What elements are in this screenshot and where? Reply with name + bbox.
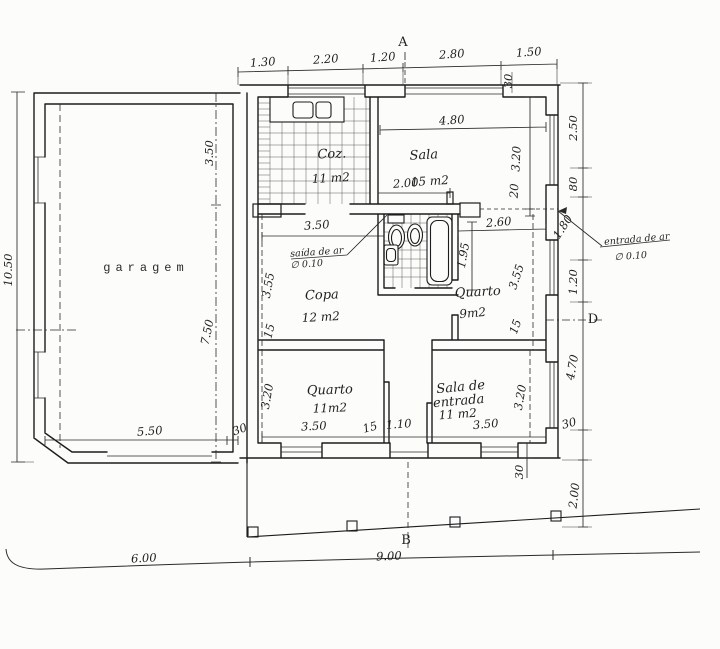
dim-garage-depth-b: 7.50 — [198, 318, 217, 346]
dim-living-width: 4.80 — [437, 112, 465, 128]
annotation-air-inlet: entrada de ar — [604, 231, 672, 248]
room-label-kitchen: Coz. — [317, 147, 346, 163]
section-marker-a: A — [397, 35, 408, 50]
dim-right-5: 4.70 — [563, 353, 581, 382]
room-area-kitchen: 11 m2 — [311, 170, 350, 186]
room-label-bedroom: Quarto — [307, 382, 354, 399]
dim-garage-width: 5.50 — [136, 423, 163, 439]
dim-pantry-depth: 3.55 — [259, 271, 277, 299]
dim-right-4: 1.20 — [566, 269, 580, 295]
kitchen-sink-counter — [270, 97, 344, 122]
dim-bed11-width: 3.50 — [301, 418, 327, 433]
floor-plan-drawing: A B D 1.30 2.20 1.20 2.80 1.50 30 2.50 8… — [0, 0, 720, 649]
dim-entry-wall: 30 — [512, 465, 526, 480]
floor-plan-page: A B D 1.30 2.20 1.20 2.80 1.50 30 2.50 8… — [0, 0, 720, 649]
room-label-pantry: Copa — [305, 287, 339, 303]
dim-top-wall: 30 — [501, 74, 515, 89]
dim-right-6: 30 — [560, 414, 578, 431]
dim-right-7: 2.00 — [565, 482, 582, 510]
dim-bed9-wall: 15 — [506, 317, 524, 336]
dim-right-3: 1.80 — [550, 212, 576, 241]
room-area-entry: 11 m2 — [438, 406, 477, 423]
dim-top-2: 2.20 — [311, 51, 339, 67]
porch-column — [450, 517, 460, 527]
section-marker-b: B — [401, 533, 411, 548]
dim-entry-depth: 3.20 — [511, 383, 529, 411]
dim-bottom-left: 6.00 — [131, 550, 157, 565]
dim-living-pass: 2.00 — [391, 175, 419, 191]
dim-right-1: 2.50 — [566, 115, 580, 142]
room-label-garage: garagem — [103, 261, 188, 275]
dim-top-3: 1.20 — [369, 49, 396, 65]
room-label-living: Sala — [409, 147, 438, 163]
annotation-air-inlet-dia: ∅ 0.10 — [614, 250, 647, 263]
dim-living-wall: 20 — [507, 183, 522, 199]
dim-bed9-depth: 3.55 — [506, 262, 527, 291]
dim-top-1: 1.30 — [249, 54, 276, 70]
porch-column — [551, 511, 561, 521]
porch-column — [248, 527, 258, 537]
annotation-air-outlet-dia: ∅ 0.10 — [290, 258, 323, 271]
dim-bed9-width: 2.60 — [484, 214, 512, 230]
toilet-tank — [388, 215, 404, 223]
room-label-bedroom-small: Quarto — [454, 284, 501, 301]
wall-pier — [460, 203, 480, 217]
dim-garage-depth-a: 3.50 — [202, 140, 216, 166]
dim-bed11-depth: 3.20 — [258, 382, 276, 410]
dim-living-depth: 3.20 — [508, 146, 523, 172]
porch-column — [347, 521, 357, 531]
dim-hall-wall: 15 — [361, 418, 379, 435]
dim-right-2: 80 — [566, 177, 580, 192]
wall-pier — [253, 204, 281, 217]
dim-bottom-right: 9.00 — [376, 549, 402, 564]
dim-top-5: 1.50 — [515, 44, 542, 60]
dim-bath-length: 1.95 — [454, 241, 472, 269]
dim-hall-width: 1.10 — [385, 416, 412, 432]
porch — [247, 458, 700, 537]
dim-left-height: 10.50 — [1, 254, 15, 287]
room-area-pantry: 12 m2 — [301, 309, 340, 325]
dim-pantry-width: 3.50 — [303, 217, 330, 233]
section-marker-d: D — [588, 312, 598, 327]
dim-top-4: 2.80 — [437, 46, 465, 62]
dimension-lines — [6, 52, 700, 569]
dim-pantry-wall: 15 — [260, 322, 277, 340]
dim-entry-width: 3.50 — [472, 416, 499, 432]
room-area-bedroom: 11m2 — [312, 400, 347, 415]
room-area-bedroom-small: 9m2 — [459, 305, 487, 321]
